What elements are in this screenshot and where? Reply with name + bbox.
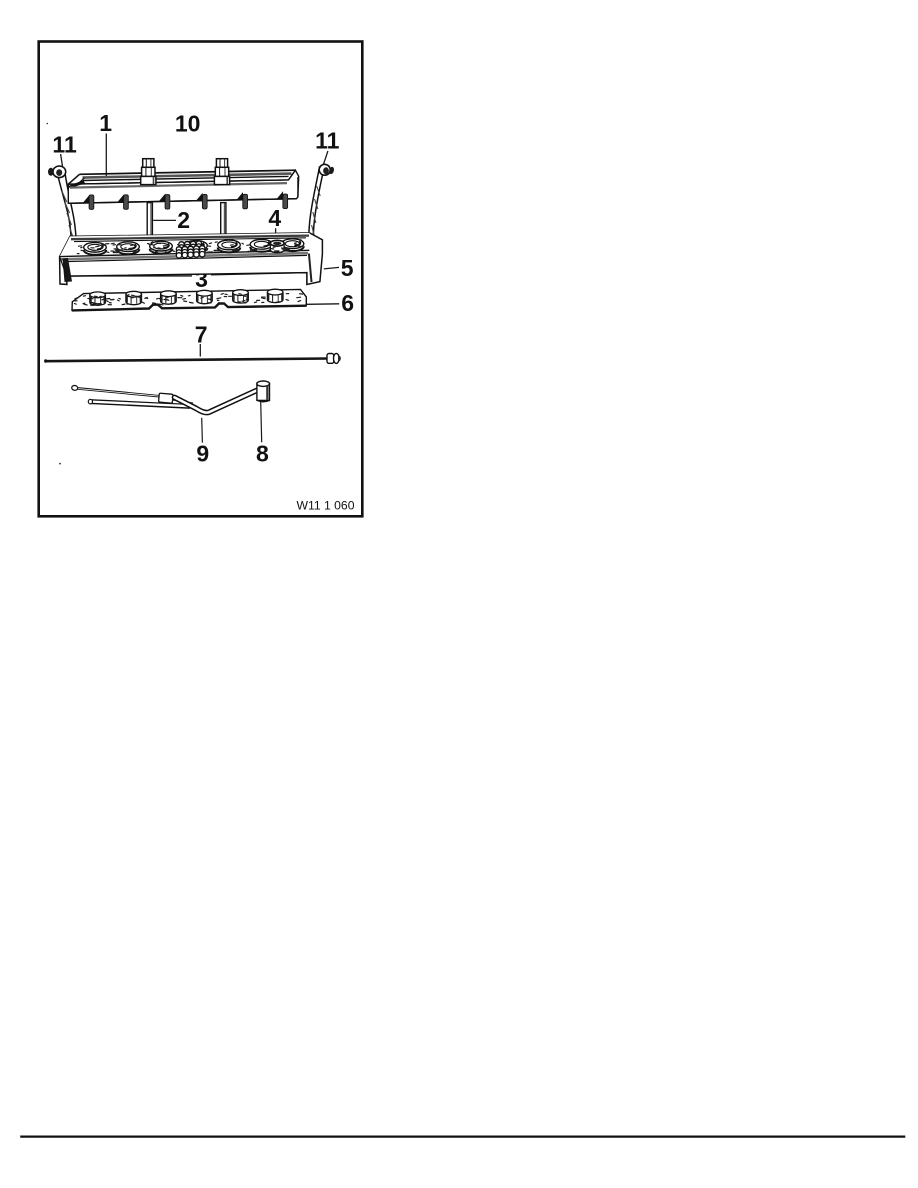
svg-text:10: 10 [175, 111, 201, 137]
svg-text:11: 11 [315, 128, 340, 154]
svg-text:8: 8 [256, 440, 269, 466]
svg-text:9: 9 [196, 440, 209, 466]
svg-text:11: 11 [52, 132, 77, 158]
svg-text:6: 6 [341, 290, 354, 316]
svg-text:1: 1 [99, 110, 112, 136]
svg-text:4: 4 [268, 205, 281, 231]
svg-text:5: 5 [341, 255, 354, 281]
svg-text:2: 2 [177, 207, 190, 233]
svg-text:7: 7 [195, 322, 208, 348]
svg-text:W11 1 060: W11 1 060 [296, 499, 354, 513]
